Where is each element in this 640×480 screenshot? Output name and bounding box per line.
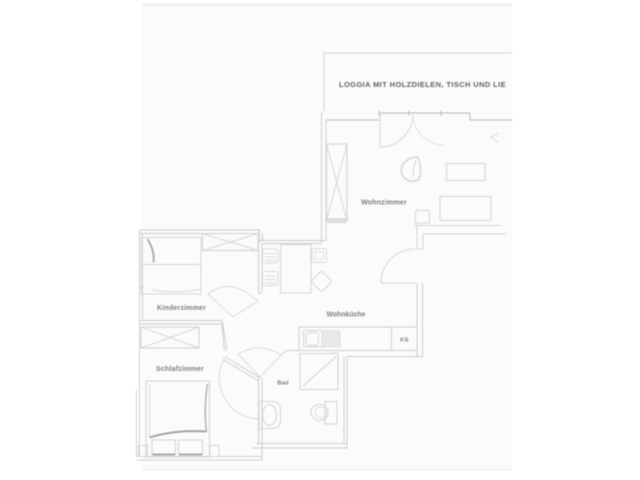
svg-text:LOGGIA MIT HOLZDIELEN, TISCH U: LOGGIA MIT HOLZDIELEN, TISCH UND LIEGEN bbox=[339, 80, 523, 89]
svg-text:Bad: Bad bbox=[277, 381, 289, 387]
svg-text:Wohnzimmer: Wohnzimmer bbox=[361, 200, 407, 207]
svg-text:Schlafzimmer: Schlafzimmer bbox=[156, 366, 204, 373]
svg-text:KS: KS bbox=[400, 338, 409, 344]
svg-text:Wohnküche: Wohnküche bbox=[327, 312, 366, 319]
svg-text:Kinderzimmer: Kinderzimmer bbox=[157, 305, 206, 312]
